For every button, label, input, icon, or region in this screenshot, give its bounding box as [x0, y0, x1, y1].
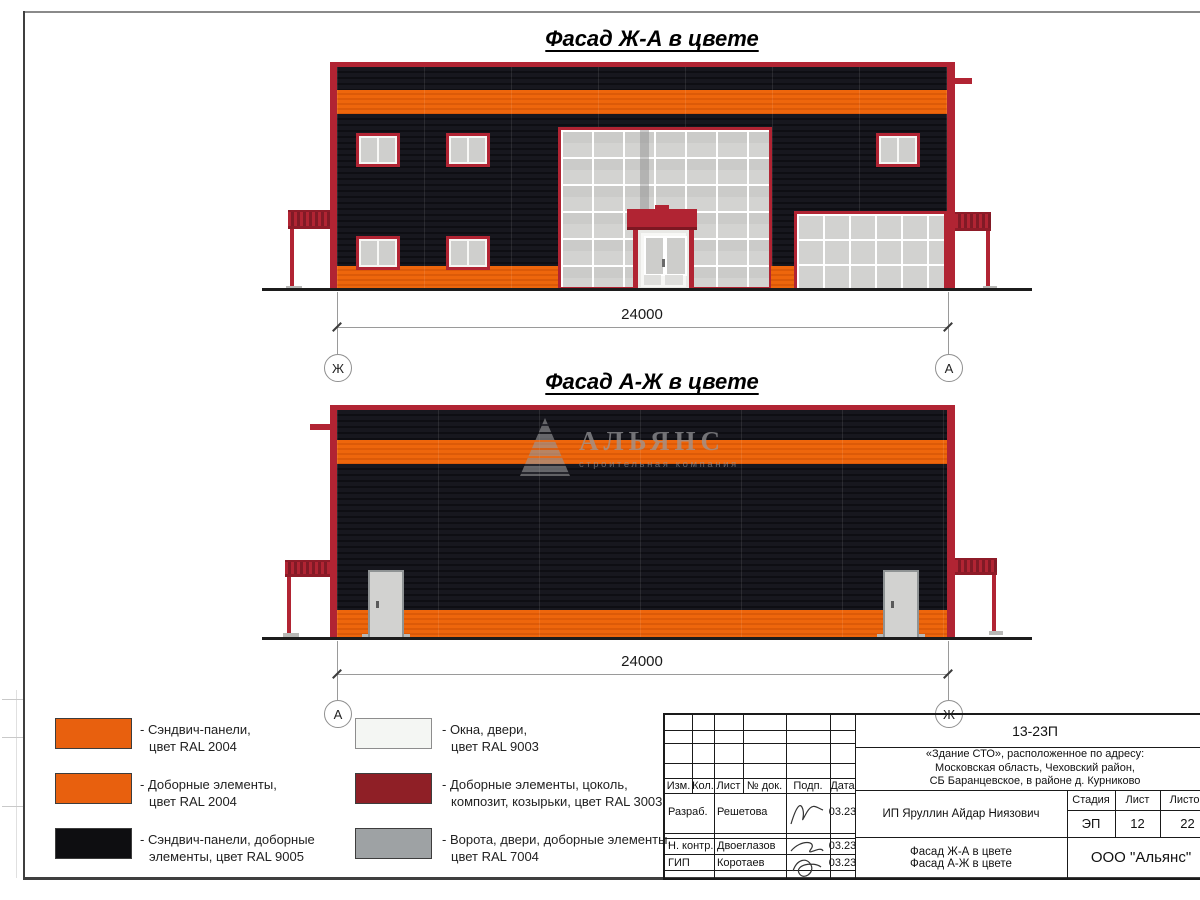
window [446, 236, 490, 270]
doc-number: 13-23П [855, 715, 1200, 747]
signer-role: Н. контр. [668, 839, 714, 853]
signer-name: Коротаев [717, 856, 785, 870]
drawing-sheet: { "drawing": { "facade_top": { "title": … [0, 0, 1200, 900]
col-list: Лист [714, 778, 743, 793]
legend-label: - Доборные элементы,цвет RAL 2004 [140, 776, 340, 810]
facade-top-title: Фасад Ж-А в цвете [545, 26, 758, 52]
title-block: Изм. Кол. Лист № док. Подп. Дата Разраб.… [663, 713, 1200, 880]
legend-swatch [55, 718, 132, 749]
signer-role: Разраб. [668, 805, 713, 819]
service-door [368, 570, 404, 639]
legend-label: - Окна, двери,цвет RAL 9003 [442, 721, 662, 755]
margin-mark [2, 699, 23, 700]
canopy-post [290, 229, 294, 290]
signature [787, 798, 829, 830]
legend-label: - Ворота, двери, доборные элементы,цвет … [442, 831, 682, 865]
sheet-frame-top [23, 11, 1200, 13]
sheet-frame-left [23, 11, 25, 880]
door-glass [665, 236, 687, 276]
legend-label: - Сэндвич-панели,цвет RAL 2004 [140, 721, 340, 755]
corner-trim-left [330, 62, 337, 290]
facade-top-drawing [330, 62, 955, 290]
gutter-stub [950, 78, 972, 84]
legend-label: - Доборные элементы, цоколь,композит, ко… [442, 776, 672, 810]
dimension-label: 24000 [621, 306, 663, 323]
signer-name: Решетова [717, 805, 785, 819]
margin-mark [2, 806, 23, 807]
drawing-title: Фасад Ж-А в цвете Фасад А-Ж в цвете [855, 837, 1067, 878]
margin-line [16, 690, 17, 878]
service-door [883, 570, 919, 639]
dimension-line [337, 327, 948, 328]
side-canopy-left [288, 210, 330, 229]
legend-swatch [55, 773, 132, 804]
signer-date: 03.23 [830, 839, 855, 853]
door-handle [662, 259, 665, 267]
sheet-label: Лист [1115, 790, 1160, 810]
sheets-label: Листов [1160, 790, 1200, 810]
dimension-line [337, 674, 948, 675]
signer-role: ГИП [668, 856, 713, 870]
ground-line [262, 637, 1032, 640]
axis-marker: А [935, 354, 963, 382]
legend-swatch [55, 828, 132, 859]
side-canopy-right [955, 558, 997, 575]
col-podp: Подп. [786, 778, 830, 793]
canopy-post [992, 575, 996, 635]
sheets-value: 22 [1160, 810, 1200, 837]
window [876, 133, 920, 167]
margin-mark [2, 737, 23, 738]
stage-value: ЭП [1067, 810, 1115, 837]
entrance-door [638, 230, 689, 290]
wall-orange-patch [771, 266, 794, 290]
legend-label: - Сэндвич-панели, доборныеэлементы, цвет… [140, 831, 350, 865]
signer-name: Двоеглазов [717, 839, 785, 853]
signer-date: 03.23 [830, 856, 855, 870]
gutter-stub [310, 424, 330, 430]
canopy-post [986, 231, 990, 290]
sheet-value: 12 [1115, 810, 1160, 837]
showcase-glazing [794, 211, 947, 290]
entrance-canopy [627, 209, 697, 230]
corner-trim-right [947, 405, 955, 639]
side-canopy-left [285, 560, 330, 577]
stage-label: Стадия [1067, 790, 1115, 810]
door-glass [644, 236, 665, 276]
door-panel [665, 275, 683, 285]
entrance-post [689, 230, 694, 290]
col-kol: Кол. [692, 778, 714, 793]
facade-bottom-drawing [330, 405, 955, 639]
window [356, 236, 400, 270]
facade-bottom-title: Фасад А-Ж в цвете [545, 369, 758, 395]
corner-trim-left [330, 405, 337, 639]
canopy-pad [989, 631, 1003, 635]
side-canopy-right [955, 212, 991, 231]
corner-trim-right [947, 62, 955, 290]
window [356, 133, 400, 167]
canopy-post [287, 577, 291, 637]
legend-swatch [355, 828, 432, 859]
panel-seams [337, 410, 947, 639]
col-ndok: № док. [743, 778, 786, 793]
ground-line [262, 288, 1032, 291]
company-name: ООО "Альянс" [1067, 837, 1200, 878]
col-data: Дата [830, 778, 855, 793]
signature [787, 837, 829, 883]
door-panel [644, 275, 661, 285]
project-address: «Здание СТО», расположенное по адресу: М… [855, 747, 1200, 790]
client-name: ИП Яруллин Айдар Ниязович [855, 790, 1067, 837]
dimension-label: 24000 [621, 653, 663, 670]
col-izm: Изм. [665, 778, 692, 793]
window [446, 133, 490, 167]
signer-date: 03.23 [830, 805, 855, 819]
legend-swatch [355, 773, 432, 804]
legend-swatch [355, 718, 432, 749]
axis-marker: Ж [324, 354, 352, 382]
